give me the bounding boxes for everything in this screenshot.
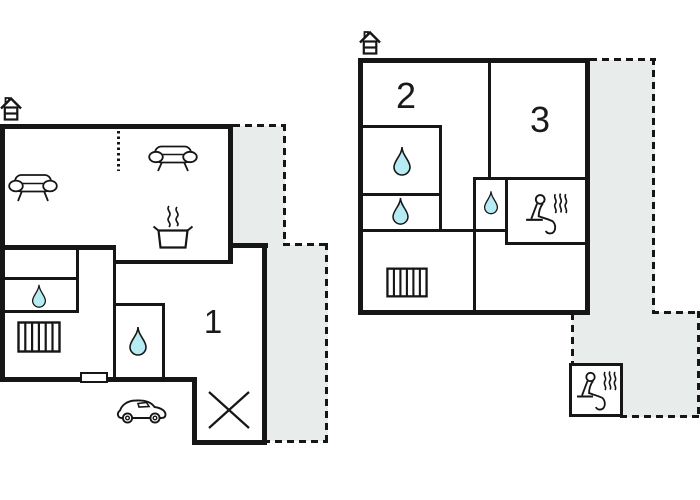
terrace-dashed-border [571, 313, 574, 365]
room-3-label: 3 [518, 98, 562, 142]
cooking-pot-icon [152, 204, 194, 250]
wall-segment [505, 242, 588, 245]
wall-segment [0, 310, 79, 313]
sofa-icon [148, 144, 198, 173]
sofa-icon [8, 172, 58, 203]
wall-segment [473, 177, 476, 313]
x-mark-icon [206, 389, 252, 431]
floor-plan-canvas: 1 [0, 0, 700, 500]
wall-segment [361, 229, 508, 232]
wall-segment [361, 193, 442, 196]
terrace-dashed-border [652, 311, 700, 314]
terrace-dashed-border [233, 124, 285, 127]
wall-segment [113, 303, 165, 306]
terrace-area [266, 245, 328, 441]
terrace-area [590, 60, 655, 312]
wall-segment [358, 58, 363, 315]
water-drop-icon [483, 189, 499, 216]
wall-segment [585, 58, 590, 315]
stairs-icon [117, 131, 120, 171]
terrace-dashed-border [283, 243, 328, 246]
wall-segment [505, 179, 508, 245]
sauna-icon [524, 190, 570, 236]
wall-segment [488, 60, 491, 180]
terrace-dashed-border [325, 243, 328, 442]
wall-segment [0, 245, 116, 250]
terrace-dashed-border [652, 58, 655, 313]
wall-segment [439, 125, 442, 232]
house-icon [0, 96, 22, 122]
wall-segment [0, 124, 5, 382]
wall-segment [262, 243, 267, 445]
car-icon [115, 396, 170, 426]
wall-segment [192, 377, 197, 445]
terrace-dashed-border [620, 415, 700, 418]
wall-segment [473, 177, 588, 180]
door-icon [80, 372, 108, 383]
wall-segment [113, 248, 116, 379]
radiator-icon [386, 267, 428, 298]
water-drop-icon [391, 197, 410, 225]
terrace-area [233, 126, 285, 245]
wall-segment [192, 440, 267, 445]
wall-segment [0, 124, 233, 129]
wall-segment [358, 58, 590, 63]
wall-segment [76, 248, 79, 313]
room-1-label: 1 [191, 300, 235, 344]
wall-segment [162, 303, 165, 379]
sauna-icon [576, 368, 618, 412]
terrace-dashed-border [283, 124, 286, 245]
wall-segment [361, 125, 442, 128]
water-drop-icon [128, 325, 148, 357]
terrace-dashed-border [263, 440, 328, 443]
room-2-label: 2 [384, 74, 428, 118]
water-drop-icon [31, 283, 47, 309]
terrace-dashed-border [590, 58, 656, 61]
wall-segment [0, 277, 78, 280]
radiator-icon [17, 321, 61, 353]
house-icon [359, 30, 381, 56]
wall-segment [113, 260, 233, 264]
water-drop-icon [392, 146, 412, 176]
